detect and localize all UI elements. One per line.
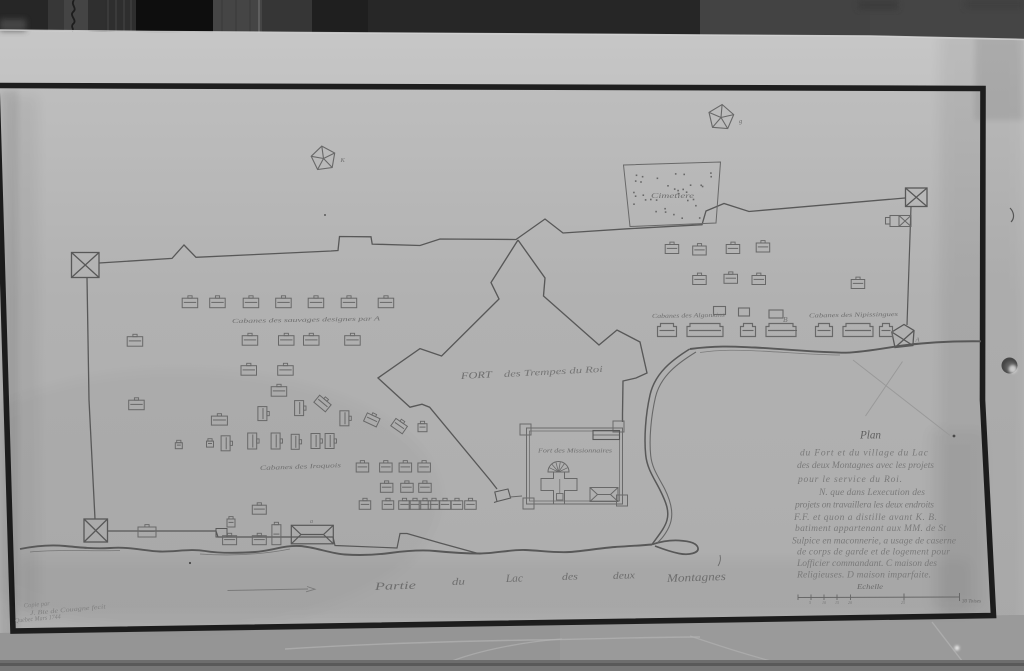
svg-text:15: 15 [835,600,839,605]
svg-text:Sulpice en maconnerie, a usage: Sulpice en maconnerie, a usage de casern… [792,537,956,547]
svg-text:deux: deux [613,570,636,582]
svg-text:Cabanes des Algonkins: Cabanes des Algonkins [652,312,726,320]
svg-text:10: 10 [822,600,826,605]
svg-text:Fort des Missionnaires: Fort des Missionnaires [537,449,613,455]
svg-text:N. que dans Lexecution des: N. que dans Lexecution des [818,488,925,498]
svg-text:Lac: Lac [505,572,524,585]
svg-text:des deux Montagnes avec les pr: des deux Montagnes avec les projets [797,461,934,471]
svg-text:Lofficier commandant. C maison: Lofficier commandant. C maison des [796,558,937,569]
svg-text:20: 20 [848,600,852,605]
svg-text:du: du [452,577,465,588]
svg-text:pour le service du Roi.: pour le service du Roi. [797,475,902,485]
svg-text:des: des [562,571,578,583]
svg-text:Echelle: Echelle [856,582,884,591]
svg-text:K: K [340,157,346,164]
svg-text:5: 5 [809,600,811,605]
svg-text:du Fort et du village du Lac: du Fort et du village du Lac [800,449,929,459]
svg-text:A: A [915,337,920,344]
svg-text:de corps de garde et de logeme: de corps de garde et de logement pour [797,548,950,558]
svg-text:Partie: Partie [373,580,416,593]
svg-text:FORT: FORT [459,370,493,382]
svg-text:Montagnes: Montagnes [666,571,727,585]
svg-text:Religieuses. D maison imparfai: Religieuses. D maison imparfaite. [796,570,931,581]
svg-text:30 Toises: 30 Toises [962,600,981,605]
svg-text:Plan: Plan [859,428,881,442]
svg-text:batiment appartenant aux MM. d: batiment appartenant aux MM. de St [795,524,946,534]
svg-text:projets on travaillera les deu: projets on travaillera les deux endroits [794,501,934,511]
svg-text:Cimetiere: Cimetiere [651,192,694,200]
svg-text:B: B [783,315,788,324]
svg-text:a: a [310,519,313,525]
svg-text:F.F. et quon a distille avant: F.F. et quon a distille avant K. B. [793,513,937,523]
svg-text:25: 25 [901,600,905,605]
